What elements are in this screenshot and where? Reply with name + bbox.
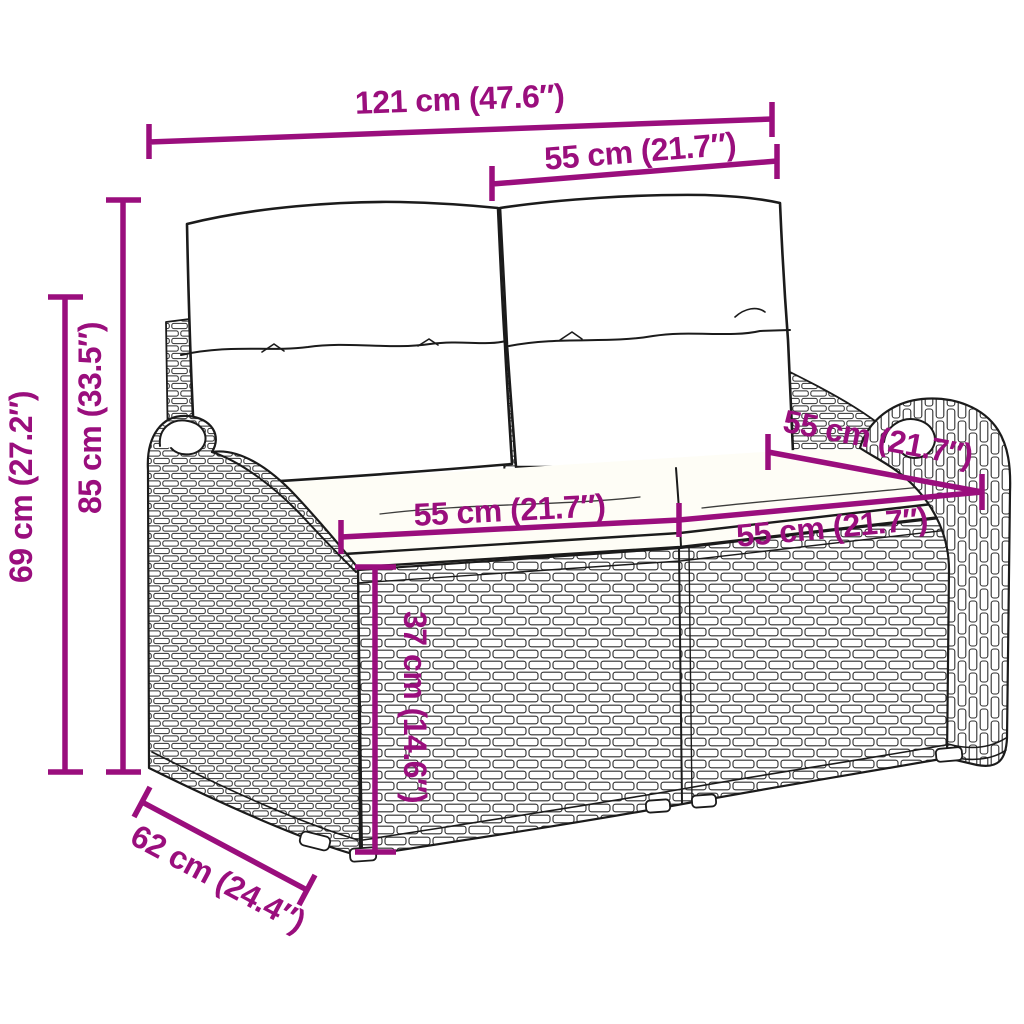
dimension-total-height: 85 cm (33.5″) (72, 200, 141, 772)
dim-overall-width-label: 121 cm (47.6″) (354, 77, 565, 121)
product-dimension-diagram: 121 cm (47.6″) 55 cm (21.7″) 85 cm (33.5… (0, 0, 1024, 1024)
back-cushion-right (500, 195, 793, 467)
diagram-canvas: 121 cm (47.6″) 55 cm (21.7″) 85 cm (33.5… (0, 0, 1024, 1024)
dimension-armrest-height: 69 cm (27.2″) (3, 297, 83, 772)
dim-total-height-label: 85 cm (33.5″) (72, 322, 108, 514)
dimension-backrest-section-width: 55 cm (21.7″) (492, 125, 777, 201)
dim-seat-height-label: 37 cm (14.6″) (397, 611, 433, 803)
dim-armrest-height-label: 69 cm (27.2″) (3, 391, 39, 583)
back-cushion-left (181, 202, 512, 487)
